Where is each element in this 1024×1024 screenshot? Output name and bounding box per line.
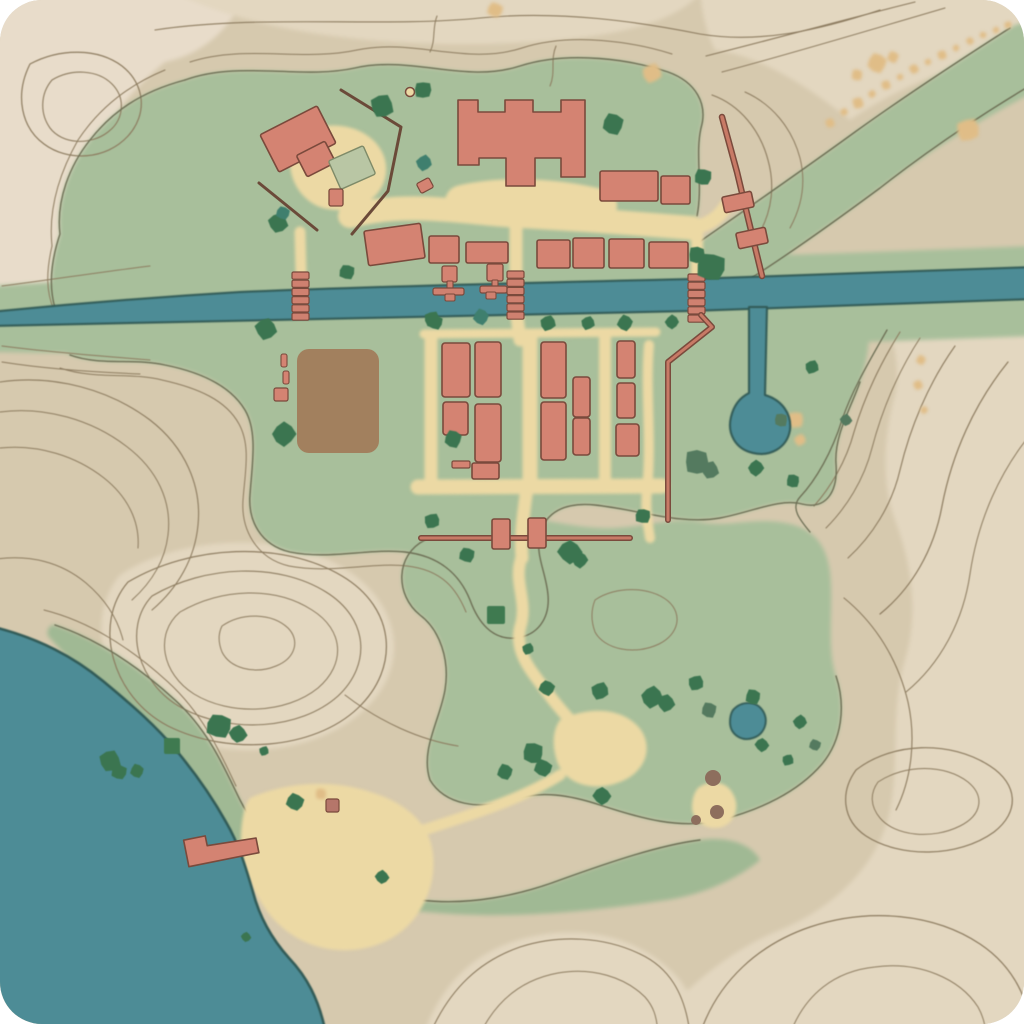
camp-building <box>475 404 501 462</box>
storehouse <box>364 223 425 266</box>
tree <box>415 82 431 97</box>
storehouse <box>466 242 508 263</box>
storehouse <box>609 239 644 268</box>
tree <box>636 509 650 523</box>
camp-building <box>541 402 566 460</box>
field-marker <box>281 354 287 367</box>
rock <box>710 805 724 819</box>
camp-building <box>472 463 499 479</box>
tree <box>164 738 180 754</box>
tree <box>689 247 704 263</box>
camp-building <box>452 461 470 468</box>
dock-pier <box>486 292 496 299</box>
camp-building <box>573 377 590 417</box>
camp-building <box>443 402 468 435</box>
dock-house <box>442 266 457 282</box>
beach-hut <box>326 799 339 812</box>
tree <box>340 265 355 279</box>
storehouse <box>429 236 459 263</box>
small-pond <box>730 703 766 739</box>
storehouse <box>649 242 688 268</box>
camp-street <box>418 486 662 487</box>
barracks-building <box>600 171 658 201</box>
camp-building <box>541 342 566 398</box>
camp-street <box>646 345 650 538</box>
river-bridge <box>507 271 524 319</box>
storehouse <box>537 240 570 268</box>
tree <box>524 743 543 763</box>
camp-building <box>573 418 590 455</box>
dock-house <box>487 264 503 281</box>
town-road <box>462 196 600 206</box>
field-hut <box>274 388 288 401</box>
rock <box>705 770 721 786</box>
map-canvas[interactable] <box>0 0 1024 1024</box>
camp-building <box>475 342 501 397</box>
camp-building <box>617 341 635 378</box>
dock-pier <box>445 294 455 301</box>
tree <box>775 414 787 427</box>
river-bridge <box>292 272 309 320</box>
wall-gate <box>528 518 546 548</box>
tree <box>487 606 505 624</box>
camp-building <box>617 383 635 418</box>
barracks-building <box>661 176 690 204</box>
parade-field <box>297 349 379 453</box>
camp-building <box>616 424 639 456</box>
shed <box>329 189 343 206</box>
south-path <box>521 487 527 558</box>
wall-gate <box>492 519 510 549</box>
camp-street <box>424 332 656 334</box>
tree <box>425 514 439 528</box>
field-marker <box>283 371 289 384</box>
map-viewport[interactable] <box>0 0 1024 1024</box>
tree <box>787 475 799 488</box>
storehouse <box>573 238 604 268</box>
tree <box>695 169 711 184</box>
rock <box>691 815 701 825</box>
bridge-road <box>300 232 301 272</box>
camp-building <box>442 343 470 397</box>
well <box>406 88 415 97</box>
